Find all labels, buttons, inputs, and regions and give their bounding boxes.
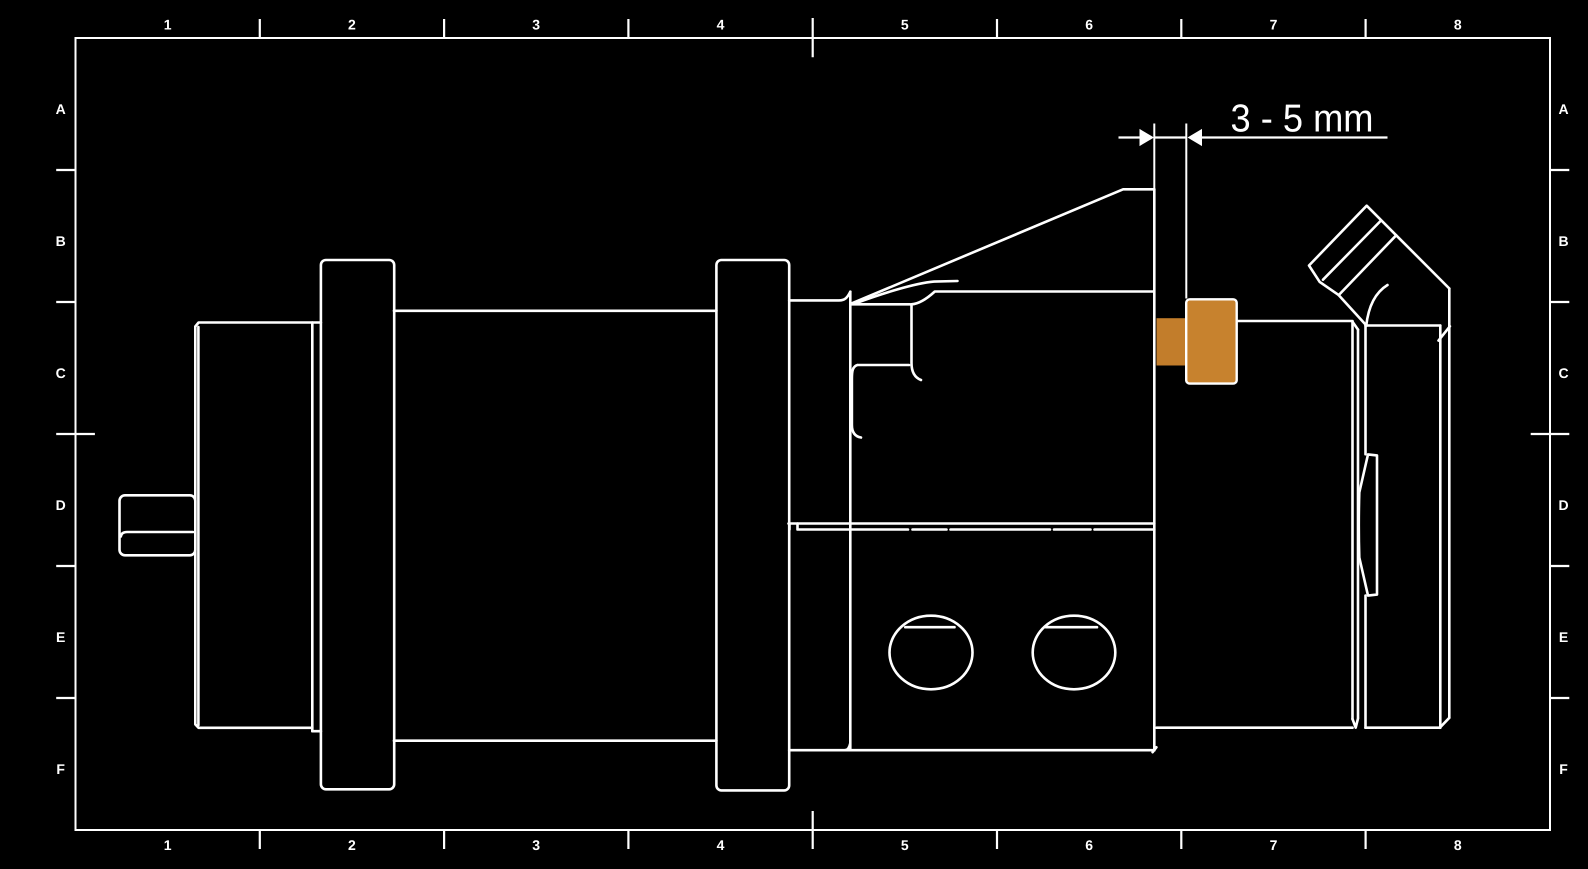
svg-text:8: 8 xyxy=(1454,17,1462,33)
svg-text:C: C xyxy=(1558,365,1568,381)
svg-text:8: 8 xyxy=(1454,837,1462,853)
svg-text:7: 7 xyxy=(1270,837,1278,853)
svg-text:B: B xyxy=(1558,233,1568,249)
svg-text:1: 1 xyxy=(164,837,172,853)
svg-text:3: 3 xyxy=(532,837,540,853)
svg-text:3: 3 xyxy=(532,17,540,33)
svg-text:E: E xyxy=(1559,629,1568,645)
svg-text:2: 2 xyxy=(348,17,356,33)
svg-text:7: 7 xyxy=(1270,17,1278,33)
svg-text:4: 4 xyxy=(717,17,725,33)
svg-text:B: B xyxy=(56,233,66,249)
svg-text:D: D xyxy=(1558,497,1568,513)
svg-text:A: A xyxy=(1558,101,1568,117)
svg-text:1: 1 xyxy=(164,17,172,33)
svg-text:E: E xyxy=(56,629,65,645)
svg-text:A: A xyxy=(56,101,66,117)
svg-text:5: 5 xyxy=(901,17,909,33)
svg-text:4: 4 xyxy=(717,837,725,853)
svg-text:C: C xyxy=(56,365,66,381)
svg-text:D: D xyxy=(56,497,66,513)
svg-text:2: 2 xyxy=(348,837,356,853)
svg-text:6: 6 xyxy=(1085,837,1093,853)
svg-text:3 - 5 mm: 3 - 5 mm xyxy=(1231,98,1374,141)
svg-text:6: 6 xyxy=(1085,17,1093,33)
svg-text:F: F xyxy=(1559,761,1568,777)
svg-text:F: F xyxy=(56,761,65,777)
svg-text:5: 5 xyxy=(901,837,909,853)
